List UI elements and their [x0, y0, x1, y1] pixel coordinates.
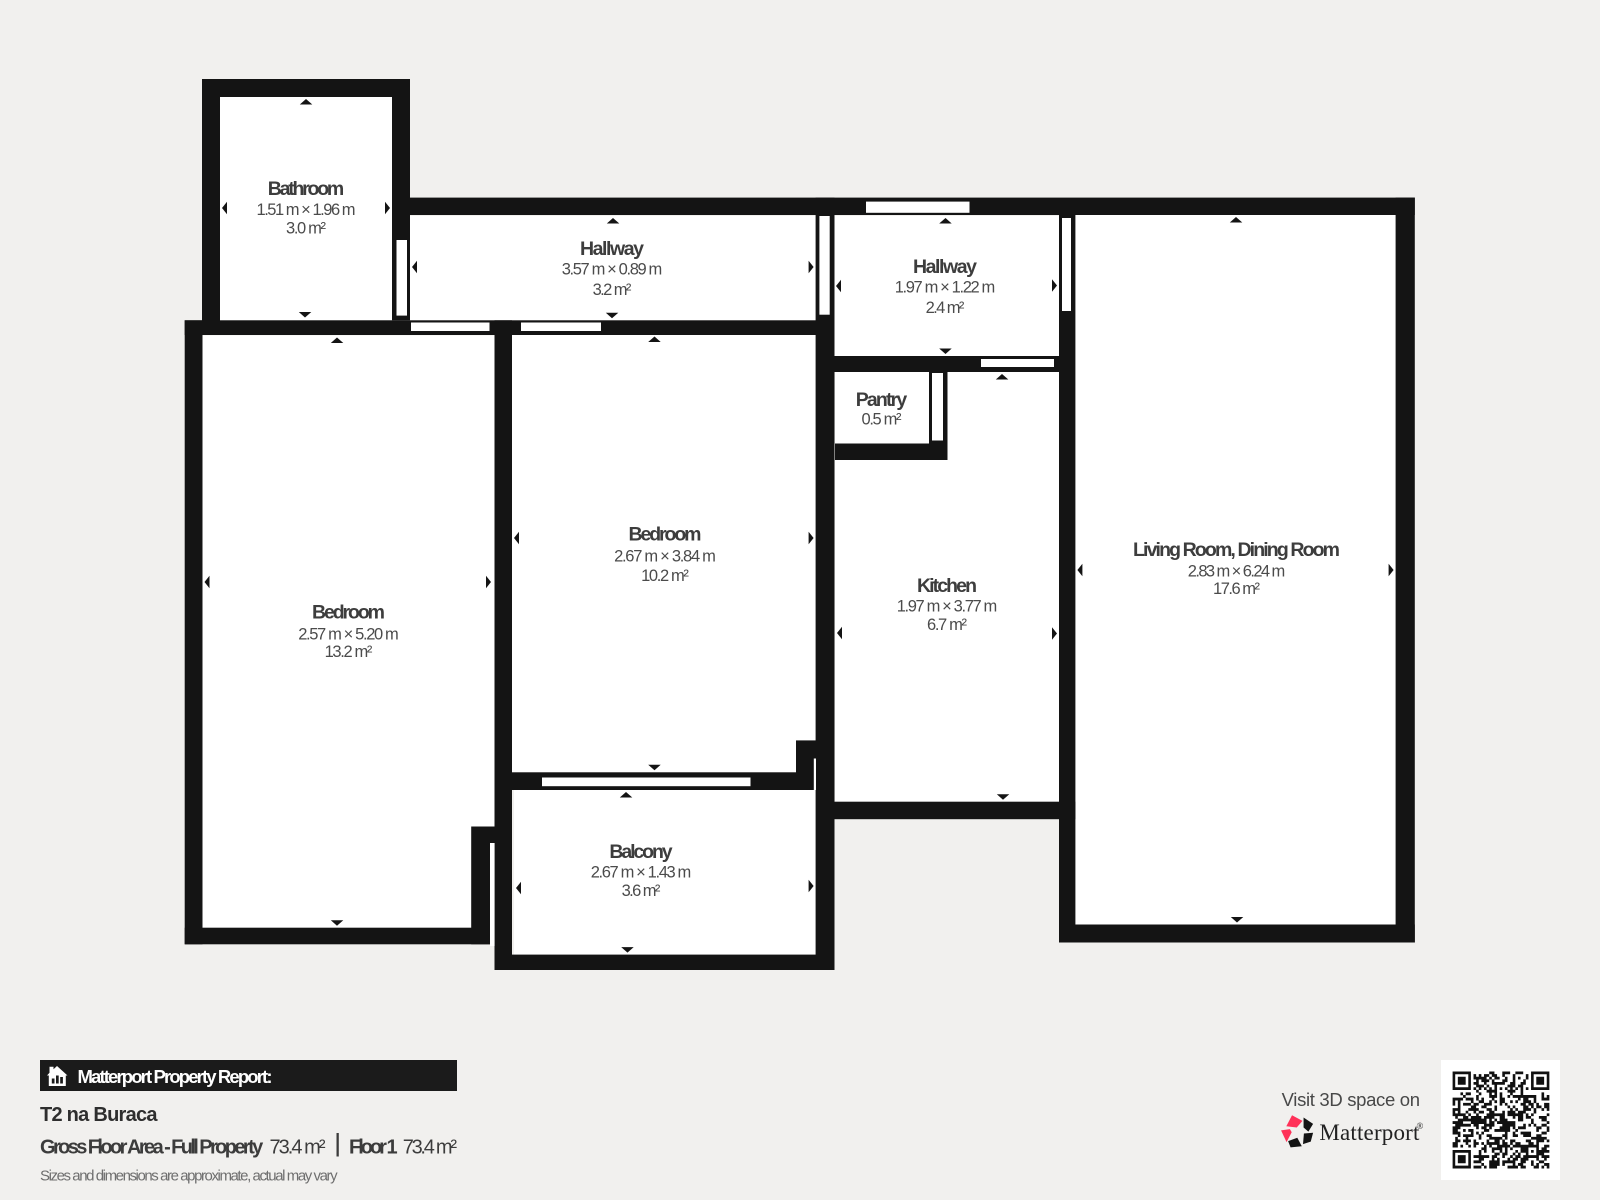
svg-text:1.97 m × 1.22 m: 1.97 m × 1.22 m: [895, 278, 996, 296]
svg-text:Matterport Property Report:: Matterport Property Report:: [78, 1066, 273, 1087]
svg-text:6.7 m²: 6.7 m²: [927, 616, 968, 634]
svg-text:Bathroom: Bathroom: [268, 178, 345, 200]
svg-text:2.67 m × 3.84 m: 2.67 m × 3.84 m: [614, 547, 716, 565]
svg-text:Gross Floor Area - Full Proper: Gross Floor Area - Full Property: [40, 1136, 264, 1158]
svg-text:Pantry: Pantry: [856, 389, 908, 411]
svg-text:3.0 m²: 3.0 m²: [286, 219, 327, 237]
svg-text:Balcony: Balcony: [609, 841, 672, 863]
svg-text:Bedroom: Bedroom: [629, 523, 702, 545]
svg-text:2.57 m × 5.20 m: 2.57 m × 5.20 m: [298, 626, 399, 644]
svg-text:Visit 3D space on: Visit 3D space on: [1282, 1089, 1420, 1110]
svg-text:®: ®: [1417, 1121, 1424, 1131]
svg-text:T2 na Buraca: T2 na Buraca: [40, 1104, 158, 1126]
svg-text:1.97 m × 3.77 m: 1.97 m × 3.77 m: [897, 597, 998, 615]
svg-text:13.2 m²: 13.2 m²: [325, 643, 373, 661]
svg-text:Living Room, Dining Room: Living Room, Dining Room: [1133, 539, 1340, 561]
svg-text:Bedroom: Bedroom: [312, 601, 385, 623]
svg-text:3.57 m × 0.89 m: 3.57 m × 0.89 m: [562, 260, 663, 278]
svg-text:Hallway: Hallway: [580, 238, 644, 260]
svg-text:Matterport: Matterport: [1319, 1120, 1420, 1145]
svg-text:0.5 m²: 0.5 m²: [862, 410, 903, 428]
svg-text:Sizes and dimensions are appro: Sizes and dimensions are approximate, ac…: [40, 1168, 338, 1185]
svg-text:3.2 m²: 3.2 m²: [593, 281, 632, 299]
svg-text:2.4 m²: 2.4 m²: [926, 299, 965, 317]
svg-text:73.4 m²: 73.4 m²: [270, 1136, 326, 1158]
svg-text:1.51 m × 1.96 m: 1.51 m × 1.96 m: [257, 201, 356, 219]
svg-text:17.6 m²: 17.6 m²: [1213, 580, 1261, 598]
svg-text:73.4 m²: 73.4 m²: [403, 1136, 458, 1158]
svg-text:Floor 1: Floor 1: [349, 1136, 398, 1158]
svg-text:Hallway: Hallway: [913, 256, 977, 278]
svg-text:2.67 m × 1.43 m: 2.67 m × 1.43 m: [591, 863, 692, 881]
svg-text:3.6 m²: 3.6 m²: [622, 882, 661, 900]
svg-text:2.83 m × 6.24 m: 2.83 m × 6.24 m: [1188, 562, 1286, 580]
svg-text:10.2 m²: 10.2 m²: [641, 567, 689, 585]
svg-text:Kitchen: Kitchen: [917, 575, 977, 597]
